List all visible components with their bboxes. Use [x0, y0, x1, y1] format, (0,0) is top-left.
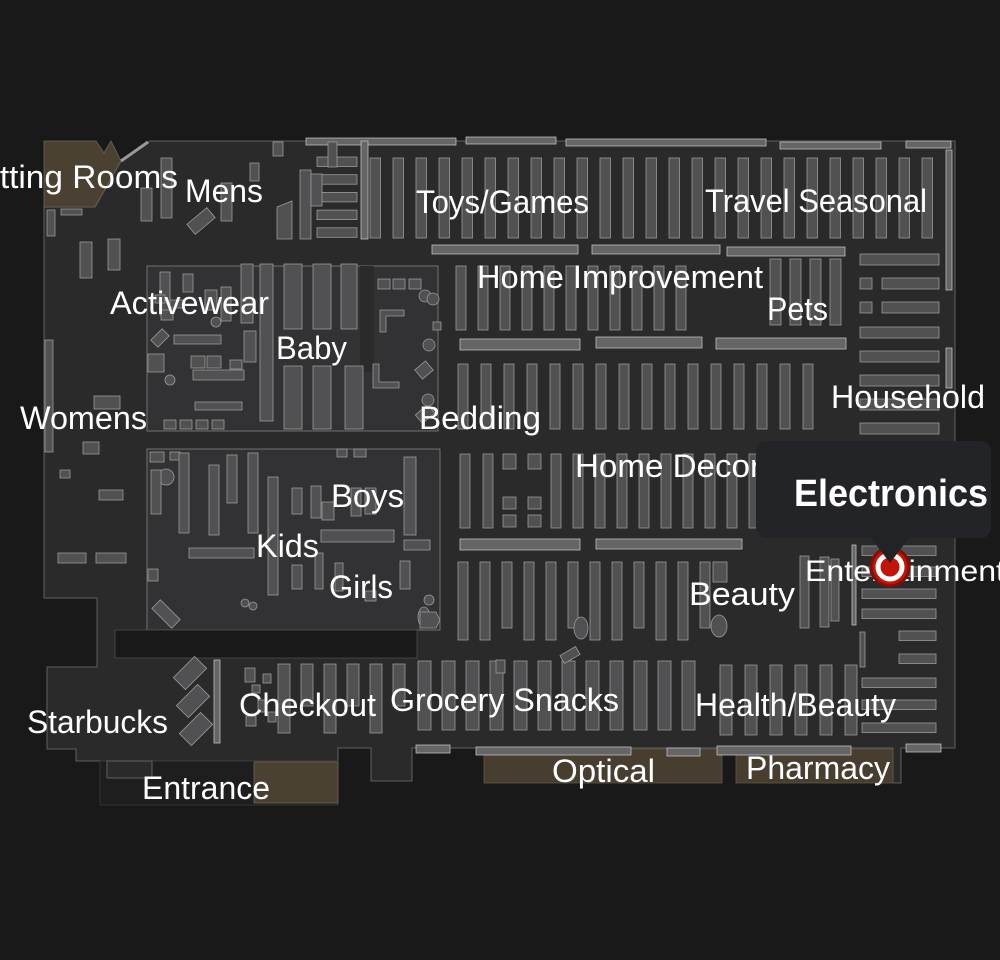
svg-text:Bedding: Bedding [419, 400, 541, 436]
svg-text:Girls: Girls [329, 569, 393, 605]
svg-text:Household: Household [831, 379, 985, 415]
svg-text:Pharmacy: Pharmacy [746, 750, 890, 786]
svg-text:Pets: Pets [767, 291, 828, 327]
svg-text:Kids: Kids [256, 528, 319, 564]
svg-text:Checkout: Checkout [239, 687, 376, 723]
svg-text:Womens: Womens [20, 400, 147, 436]
svg-text:Activewear: Activewear [110, 285, 269, 321]
svg-text:Travel Seasonal: Travel Seasonal [705, 183, 927, 219]
svg-text:Health/Beauty: Health/Beauty [695, 687, 896, 723]
svg-text:Beauty: Beauty [689, 576, 795, 612]
svg-text:Home Decor: Home Decor [575, 448, 761, 484]
svg-text:Toys/Games: Toys/Games [416, 184, 589, 220]
svg-text:Fitting Rooms: Fitting Rooms [0, 159, 178, 195]
svg-text:Mens: Mens [185, 173, 263, 209]
svg-text:Starbucks: Starbucks [27, 704, 168, 740]
svg-text:Electronics: Electronics [794, 473, 988, 515]
svg-text:Entrance: Entrance [142, 770, 270, 806]
svg-text:Boys: Boys [331, 478, 404, 514]
svg-text:Home Improvement: Home Improvement [477, 259, 763, 295]
svg-text:Grocery Snacks: Grocery Snacks [390, 682, 619, 718]
svg-text:Optical: Optical [552, 753, 655, 789]
svg-text:Baby: Baby [276, 330, 347, 366]
